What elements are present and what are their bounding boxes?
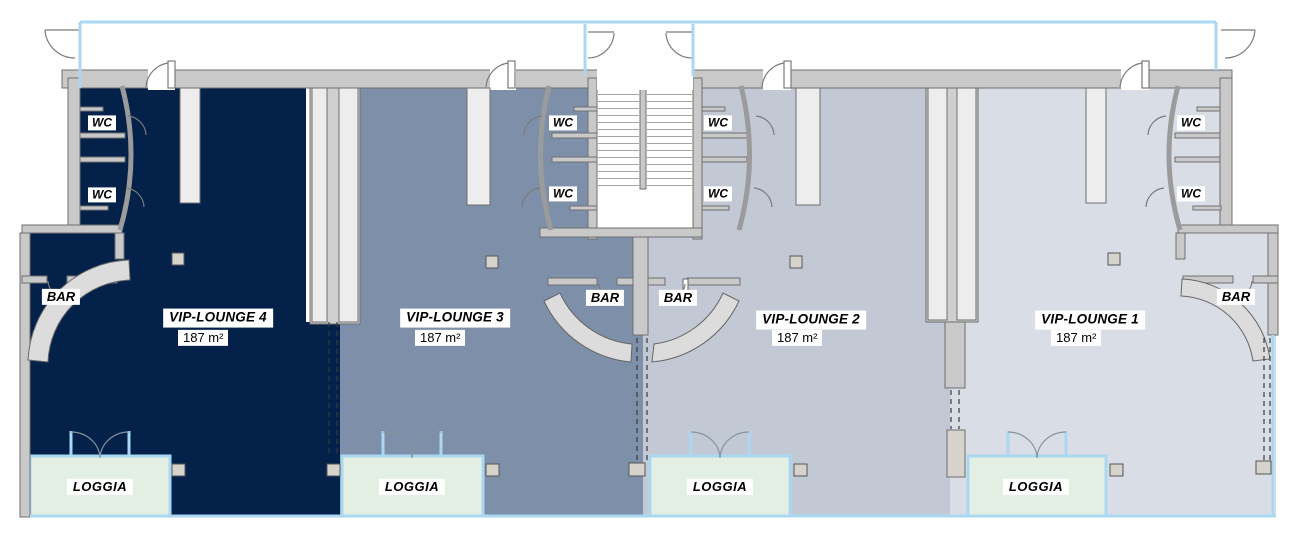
- wc-label: WC: [1177, 186, 1205, 201]
- left-wall: [68, 78, 80, 228]
- lounge-name-label[interactable]: VIP-LOUNGE 1: [1035, 311, 1145, 330]
- floor-plan: WC WC WC WC WC WC WC WC BAR BAR BAR BAR …: [0, 0, 1300, 540]
- stair-stringer: [640, 84, 646, 189]
- stair-treads-left: [598, 88, 639, 186]
- wc-label: WC: [704, 115, 732, 130]
- loggia-label: LOGGIA: [67, 479, 133, 495]
- lounge-area-label: 187 m²: [178, 330, 228, 346]
- lounge-area-label: 187 m²: [1051, 330, 1101, 346]
- right-wall: [1220, 78, 1232, 228]
- center-divider-wall: [633, 237, 648, 335]
- bar-label: BAR: [1217, 289, 1255, 305]
- right-lower-wall: [1268, 233, 1278, 335]
- stair-treads-right: [647, 88, 692, 186]
- wc-label: WC: [88, 187, 116, 202]
- vestibule-door-right: [666, 32, 692, 58]
- wc-label: WC: [88, 115, 116, 130]
- wc-label: WC: [1177, 115, 1205, 130]
- vestibule-door-left: [588, 32, 614, 58]
- floor-plan-svg: [0, 0, 1300, 540]
- bar-label: BAR: [586, 290, 624, 306]
- lounge-name-label[interactable]: VIP-LOUNGE 3: [400, 309, 510, 328]
- staircase: [597, 78, 693, 230]
- wc-label: WC: [549, 186, 577, 201]
- loggia-label: LOGGIA: [1003, 479, 1069, 495]
- balcony-door-right: [1221, 30, 1255, 58]
- lounge-area-label: 187 m²: [415, 330, 465, 346]
- wc-label: WC: [704, 186, 732, 201]
- loggia-label: LOGGIA: [687, 479, 753, 495]
- bar-label: BAR: [42, 289, 80, 305]
- lounge-name-label[interactable]: VIP-LOUNGE 2: [756, 311, 866, 330]
- loggia-label: LOGGIA: [379, 479, 445, 495]
- lounge-area-label: 187 m²: [772, 330, 822, 346]
- wc-label: WC: [549, 115, 577, 130]
- lounge-name-label[interactable]: VIP-LOUNGE 4: [163, 309, 273, 328]
- balcony-door-left: [45, 30, 79, 58]
- bar-label: BAR: [659, 290, 697, 306]
- stair-wall-bottom: [540, 228, 702, 237]
- stair-wall-right: [693, 78, 702, 239]
